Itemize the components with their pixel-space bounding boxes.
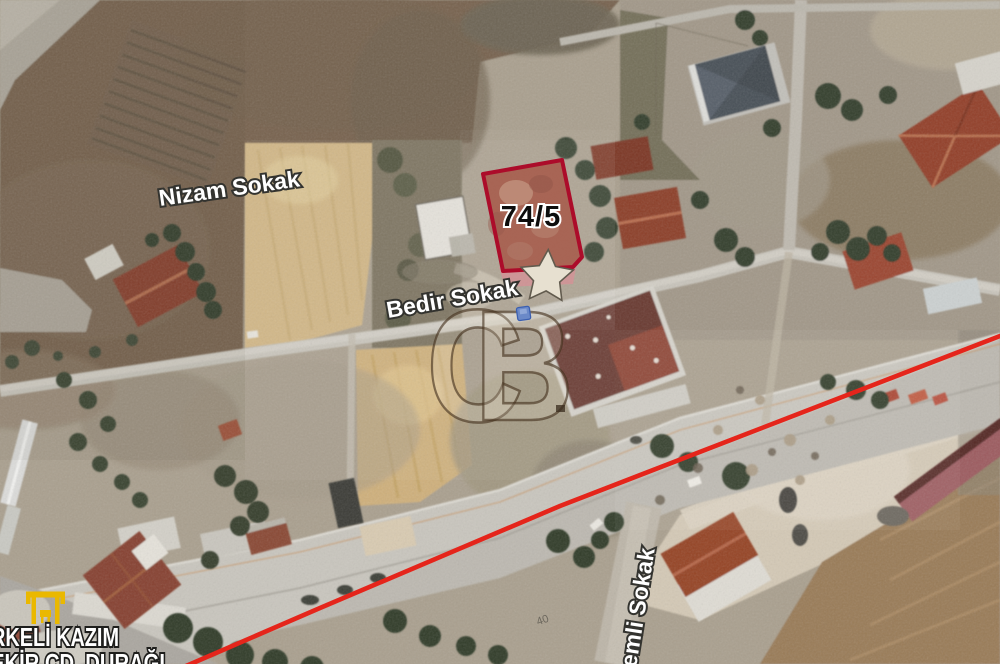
svg-text:74/5: 74/5 xyxy=(501,201,561,233)
svg-text:EKİR CD. DURAĞI: EKİR CD. DURAĞI xyxy=(0,648,165,664)
